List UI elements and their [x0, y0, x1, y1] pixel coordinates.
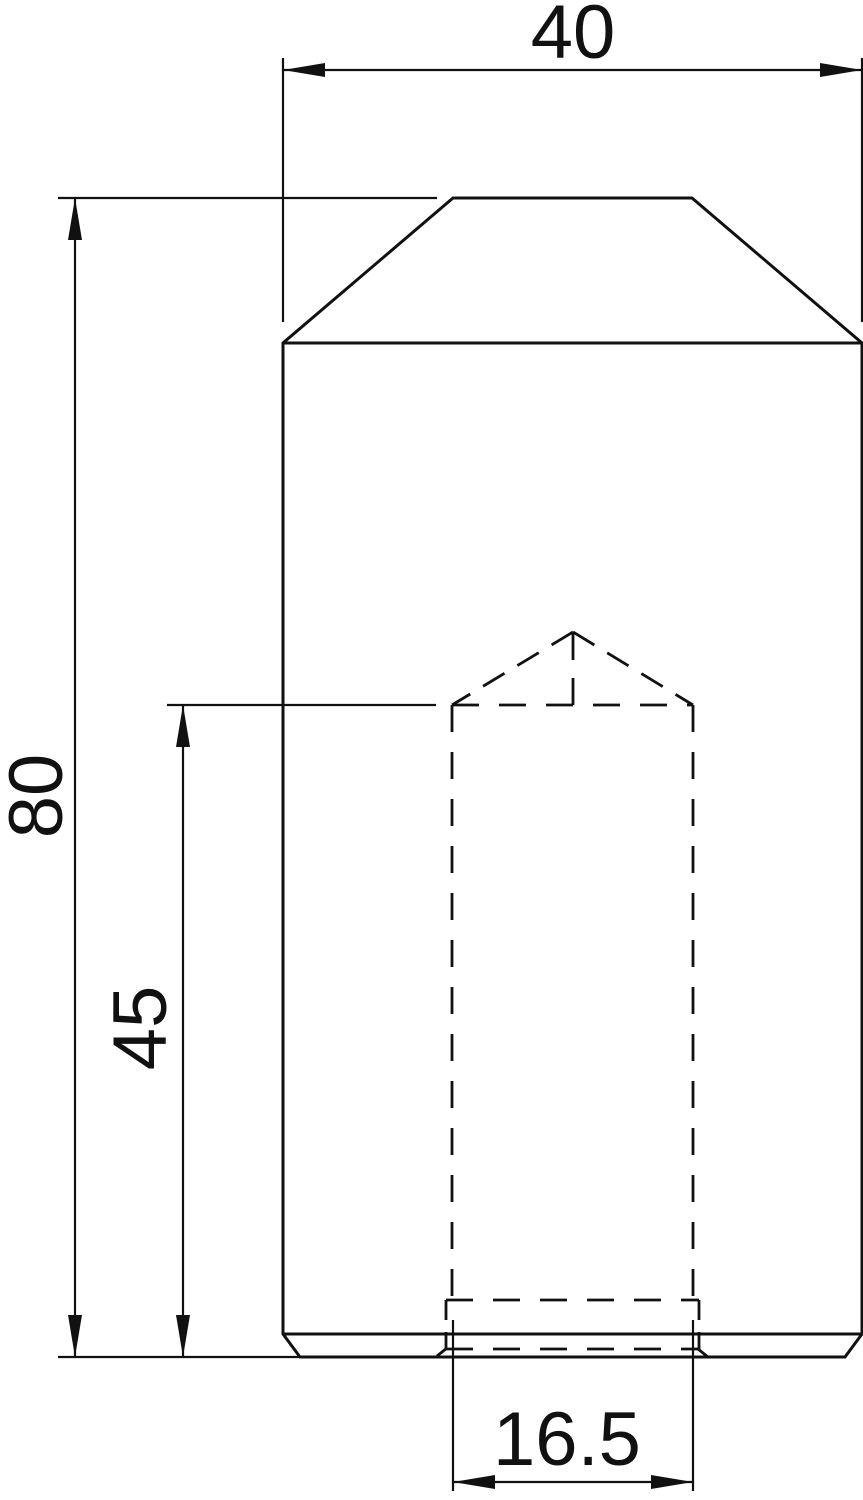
arrowhead-right [651, 1475, 693, 1489]
dimension-overall-height: 80 [0, 198, 437, 1357]
dimension-overall-width: 40 [283, 0, 862, 322]
arrowhead-up [68, 198, 82, 240]
dimension-label-hole-diameter: 16.5 [493, 1397, 641, 1482]
hidden-hole-outline [437, 632, 708, 1357]
arrowhead-down [68, 1315, 82, 1357]
arrowhead-up [176, 705, 190, 747]
dimension-hole-depth: 45 [98, 705, 436, 1357]
dimension-label-hole-depth: 45 [98, 986, 183, 1071]
arrowhead-right [820, 63, 862, 77]
arrowhead-down [176, 1315, 190, 1357]
dimension-label-overall-width: 40 [531, 0, 616, 75]
part-outline [283, 198, 862, 1357]
part-body-edge [283, 198, 862, 1357]
dimension-label-overall-height: 80 [0, 754, 79, 839]
hole-cone-left-edge [452, 632, 573, 705]
arrowhead-left [453, 1475, 495, 1489]
technical-drawing: 40 80 45 16.5 [0, 0, 863, 1500]
arrowhead-left [283, 63, 325, 77]
dimension-hole-diameter: 16.5 [453, 1320, 693, 1491]
mouth-chamfer-left-edge [437, 1348, 447, 1356]
hole-cone-right-edge [573, 632, 693, 705]
drawing-canvas: 40 80 45 16.5 [0, 0, 863, 1500]
